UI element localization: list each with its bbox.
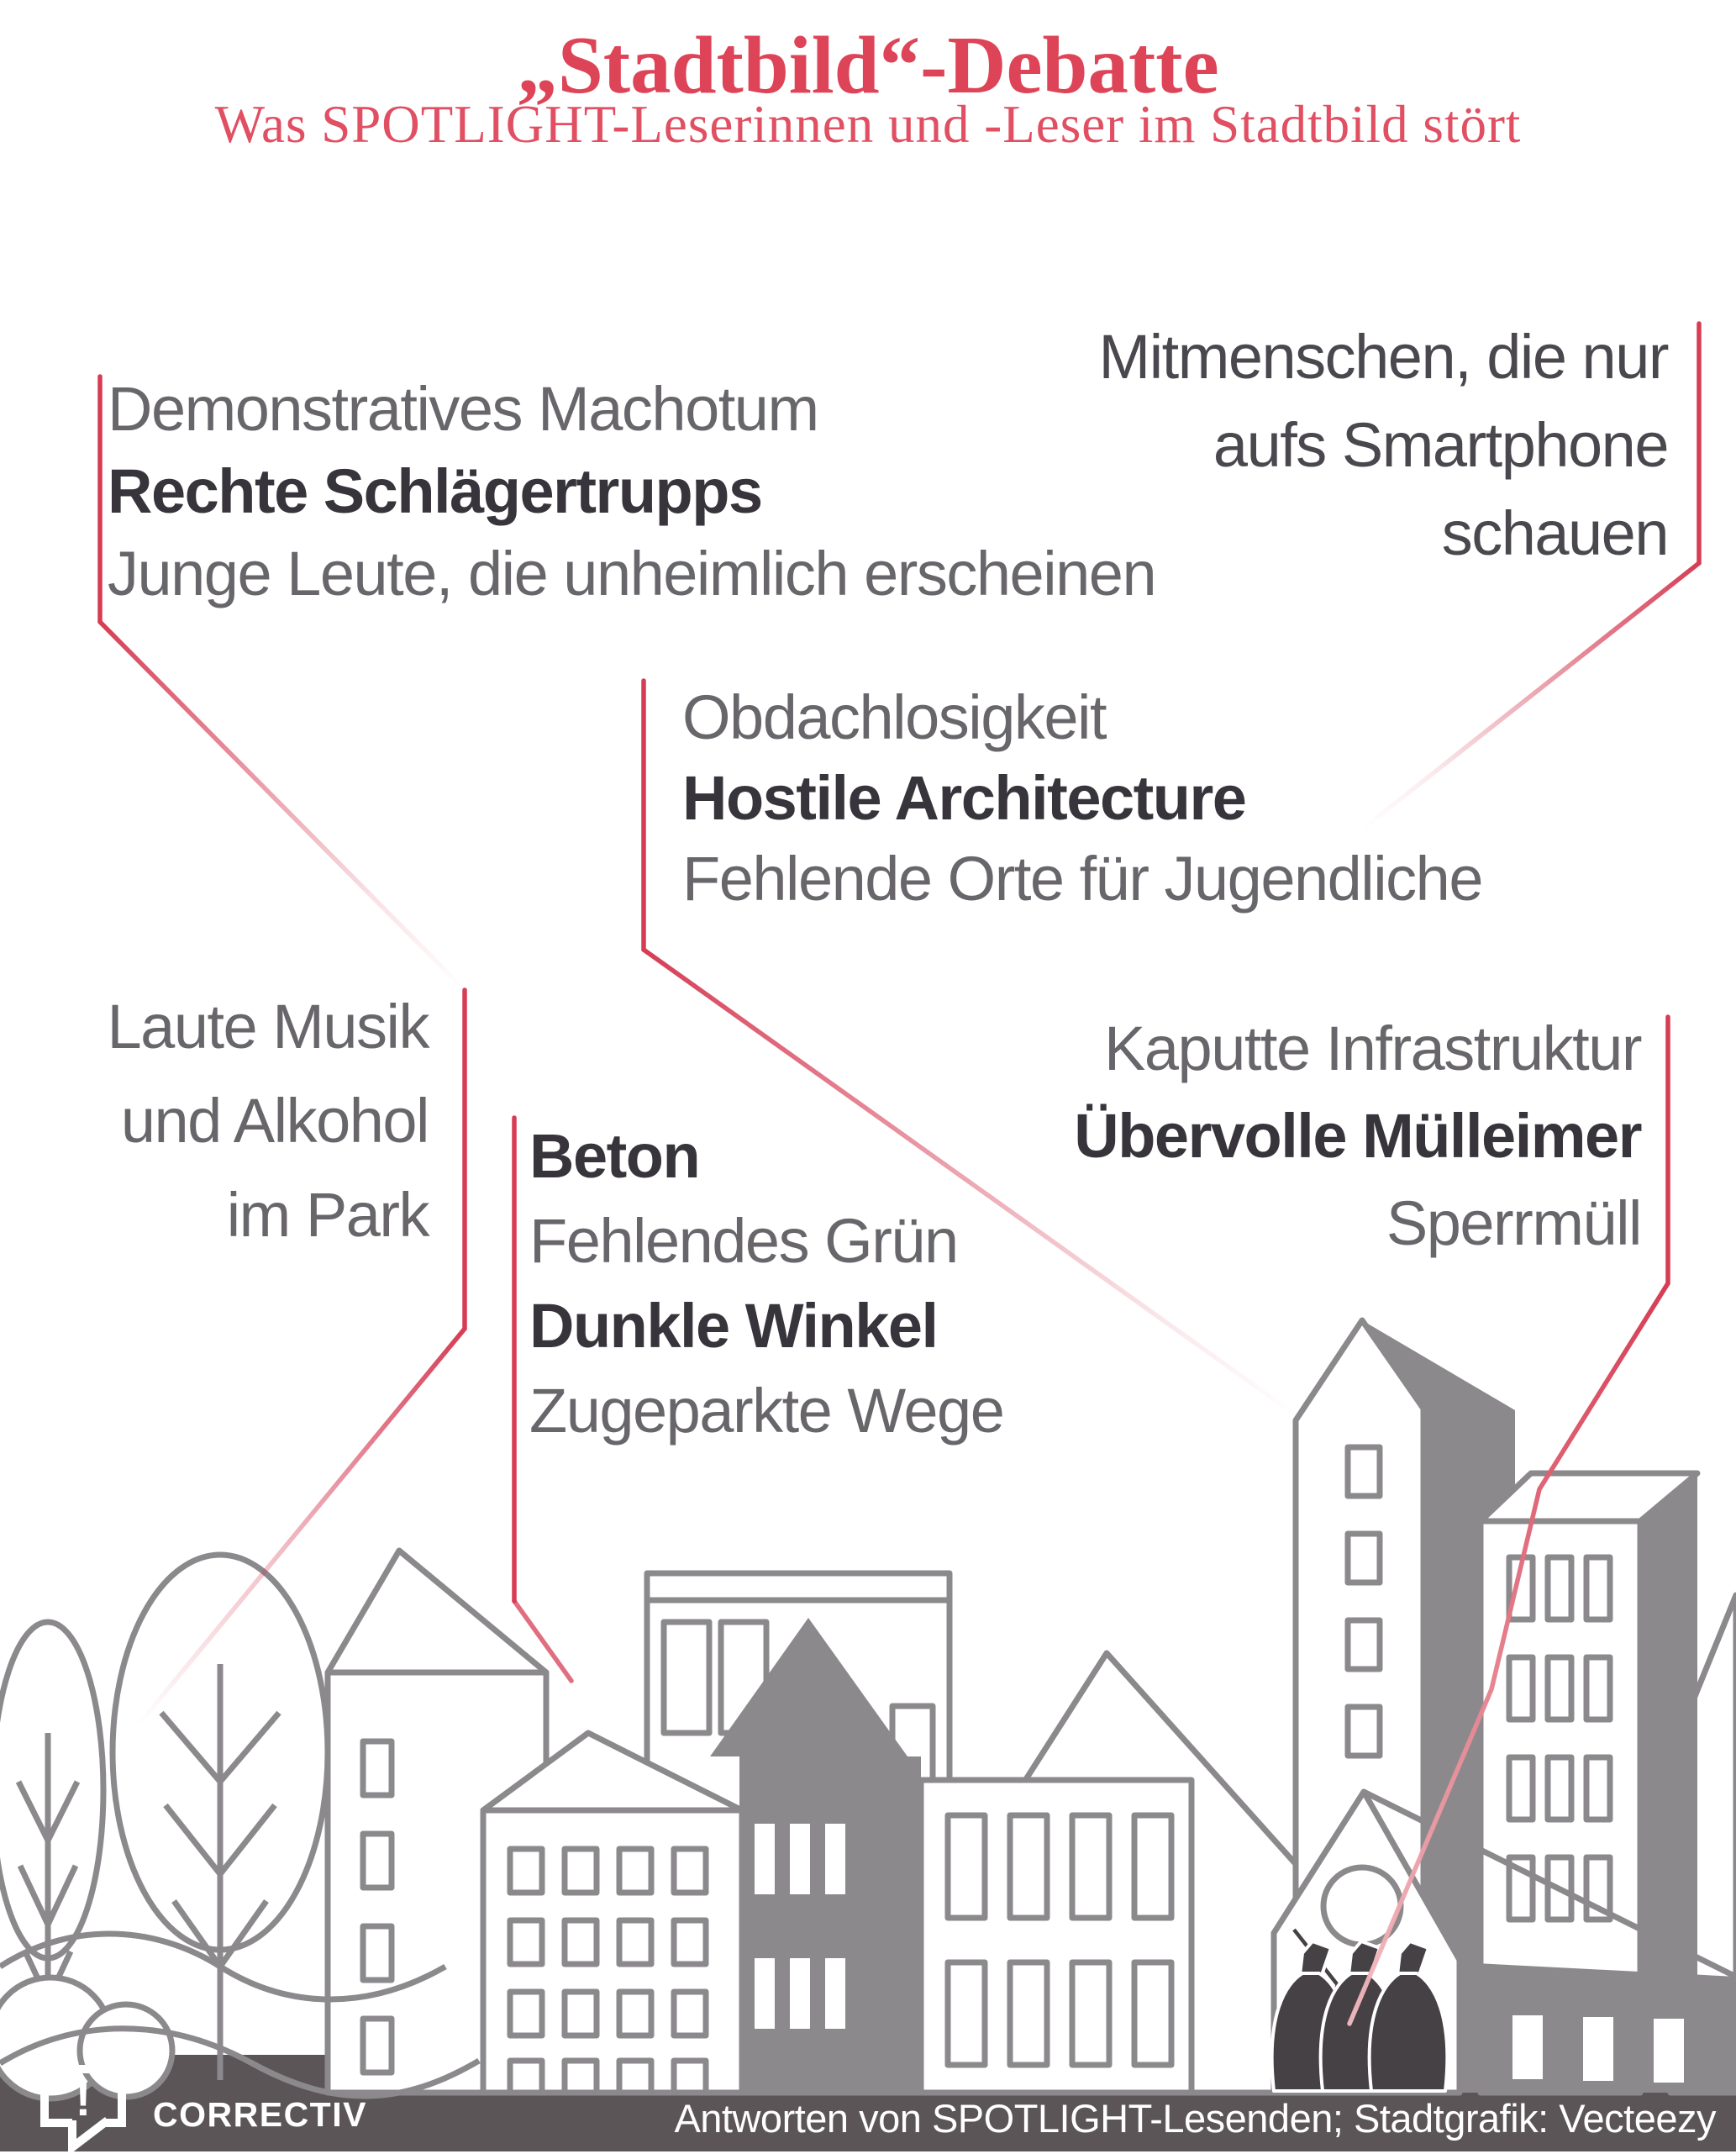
cluster-line: Kaputte Infrastruktur — [1074, 1005, 1641, 1093]
page-subtitle: Was SPOTLIGHT-Leserinnen und -Leser im S… — [0, 94, 1736, 155]
speech-bubble-icon: ! — [39, 2063, 138, 2154]
cluster-infrastruktur: Kaputte Infrastruktur Übervolle Mülleime… — [1074, 1005, 1641, 1267]
cluster-line: Fehlende Orte für Jugendliche — [682, 839, 1482, 919]
cluster-line: Laute Musik — [108, 980, 429, 1074]
cluster-machotum: Demonstratives Machotum Rechte Schlägert… — [108, 368, 1155, 615]
cluster-beton: Beton Fehlendes Grün Dunkle Winkel Zugep… — [529, 1114, 1003, 1453]
exclamation-mark-icon: ! — [76, 2072, 92, 2125]
cluster-line: Beton — [529, 1114, 1003, 1198]
cluster-line: Hostile Architecture — [682, 758, 1482, 839]
cluster-line: Rechte Schlägertrupps — [108, 450, 1155, 533]
cluster-line: Sperrmüll — [1074, 1180, 1641, 1267]
credit-text: Antworten von SPOTLIGHT-Lesenden; Stadtg… — [674, 2095, 1716, 2141]
cluster-line: Junge Leute, die unheimlich erscheinen — [108, 533, 1155, 615]
cluster-line: und Alkohol — [108, 1074, 429, 1168]
building-midrise — [921, 1780, 1192, 2093]
brand-name: CORRECTIV — [153, 2095, 367, 2135]
cluster-line: Demonstratives Machotum — [108, 368, 1155, 450]
cluster-line: aufs Smartphone — [1099, 401, 1668, 489]
cluster-line: Übervolle Mülleimer — [1074, 1093, 1641, 1180]
cluster-line: Obdachlosigkeit — [682, 677, 1482, 758]
cluster-line: Zugeparkte Wege — [529, 1368, 1003, 1453]
cluster-line: im Park — [108, 1168, 429, 1262]
cluster-line: Dunkle Winkel — [529, 1283, 1003, 1368]
cluster-park: Laute Musik und Alkohol im Park — [108, 980, 429, 1262]
correctiv-logo: ! CORRECTIV — [39, 2063, 367, 2154]
cluster-line: Fehlendes Grün — [529, 1198, 1003, 1283]
cluster-line: Mitmenschen, die nur — [1099, 313, 1668, 401]
tree-icon — [113, 1555, 328, 2080]
cluster-smartphone: Mitmenschen, die nur aufs Smartphone sch… — [1099, 313, 1668, 577]
cluster-obdachlosigkeit: Obdachlosigkeit Hostile Architecture Feh… — [682, 677, 1482, 919]
footer: ! CORRECTIV Antworten von SPOTLIGHT-Lese… — [0, 2055, 1736, 2151]
cluster-line: schauen — [1099, 489, 1668, 577]
